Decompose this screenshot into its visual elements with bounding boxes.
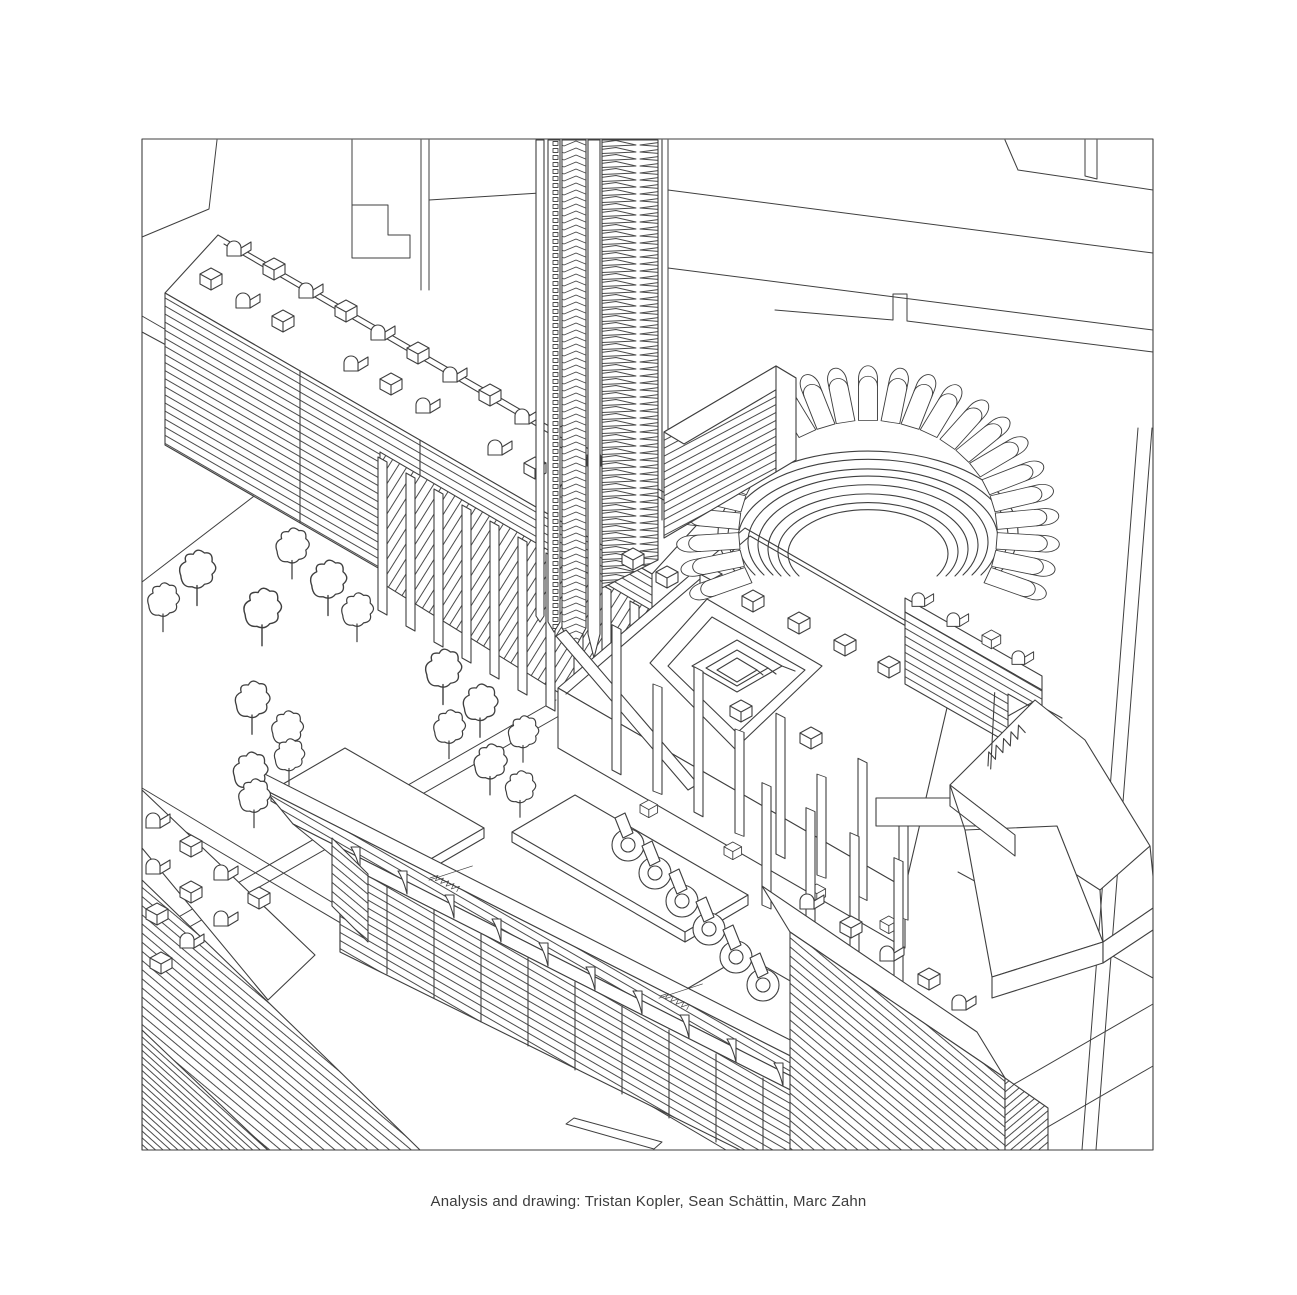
page: Analysis and drawing: Tristan Kopler, Se… (0, 0, 1297, 1295)
caption: Analysis and drawing: Tristan Kopler, Se… (0, 1193, 1297, 1210)
axonometric-drawing (0, 0, 1297, 1295)
